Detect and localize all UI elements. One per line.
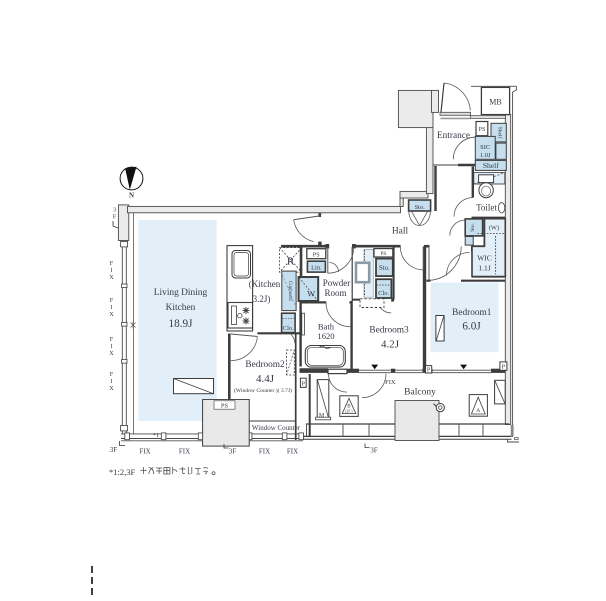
svg-text:Powder: Powder (323, 278, 351, 288)
svg-text:FIX: FIX (259, 448, 270, 456)
svg-text:1.1J: 1.1J (478, 264, 490, 273)
svg-text:X: X (109, 385, 114, 392)
svg-text:F: F (110, 260, 114, 267)
svg-text:X: X (109, 274, 114, 281)
svg-text:Room: Room (324, 288, 346, 298)
svg-text:Sto.: Sto. (414, 204, 425, 211)
svg-text:FIX: FIX (139, 448, 150, 456)
svg-text:(W): (W) (489, 225, 499, 232)
svg-text:Living Dining: Living Dining (154, 288, 208, 298)
svg-text:F: F (113, 214, 117, 221)
svg-text:Balcony: Balcony (404, 388, 436, 398)
svg-text:(2F ): (2F ) (345, 410, 353, 414)
svg-text:Shelf: Shelf (497, 127, 504, 139)
svg-text:18.9J: 18.9J (169, 318, 194, 330)
svg-text:PS: PS (313, 251, 320, 258)
svg-text:I: I (110, 378, 112, 385)
svg-text:3: 3 (113, 207, 116, 214)
svg-text:I: I (110, 304, 112, 311)
svg-text:Shelf: Shelf (483, 161, 499, 170)
svg-text:(Kitchen: (Kitchen (249, 279, 281, 289)
svg-text:MB: MB (489, 98, 501, 107)
svg-text:(Window Counter )( 3.7J): (Window Counter )( 3.7J) (234, 387, 292, 394)
svg-text:Lin.: Lin. (311, 264, 322, 271)
svg-text:FIX: FIX (179, 448, 190, 456)
svg-text:Bedroom3: Bedroom3 (369, 326, 409, 336)
svg-text:3F: 3F (229, 448, 237, 456)
svg-text:I: I (110, 343, 112, 350)
svg-text:WIC: WIC (477, 254, 492, 263)
svg-text:Bedroom2: Bedroom2 (245, 360, 285, 370)
svg-text:1620: 1620 (317, 331, 334, 341)
svg-text:Kitchen: Kitchen (166, 303, 196, 313)
svg-text:FIX: FIX (385, 379, 396, 386)
svg-text:*1:2,3F: *1:2,3F (109, 467, 135, 477)
svg-text:A: A (476, 408, 480, 414)
svg-text:I: I (110, 267, 112, 274)
svg-text:M: M (319, 413, 325, 419)
svg-text:Cupboard: Cupboard (287, 281, 292, 301)
svg-text:W: W (307, 289, 315, 299)
svg-text:X: X (109, 311, 114, 318)
svg-text:1.0J: 1.0J (480, 152, 491, 159)
svg-text:PS: PS (479, 127, 486, 133)
svg-text:Bedroom1: Bedroom1 (452, 308, 492, 318)
svg-text:SIC: SIC (480, 144, 490, 151)
svg-text:R: R (287, 256, 295, 268)
svg-text:N: N (129, 192, 134, 200)
svg-text:3F: 3F (370, 447, 378, 455)
svg-text:PS: PS (221, 403, 229, 410)
svg-text:Sto.: Sto. (379, 265, 390, 272)
svg-text:Clo.: Clo. (378, 290, 389, 297)
svg-text:F: F (110, 297, 114, 304)
svg-text:FIX: FIX (287, 448, 298, 456)
svg-text:*1: *1 (153, 432, 160, 439)
svg-text:Clo.: Clo. (283, 325, 294, 332)
svg-text:F: F (110, 336, 114, 343)
svg-text:Entrance: Entrance (437, 131, 470, 141)
svg-text:Toilet: Toilet (476, 203, 497, 213)
svg-text:3F: 3F (110, 446, 118, 454)
svg-text:PS: PS (380, 251, 386, 257)
svg-text:Hall: Hall (392, 227, 409, 237)
svg-text:3.2J): 3.2J) (253, 294, 271, 304)
svg-text:F: F (110, 371, 114, 378)
svg-text:X: X (109, 350, 114, 357)
svg-text:6.0J: 6.0J (462, 321, 481, 333)
svg-text:Sto.: Sto. (470, 222, 476, 231)
svg-text:4.4J: 4.4J (256, 373, 275, 385)
svg-text:Window Counter: Window Counter (252, 424, 301, 432)
svg-text:4.2J: 4.2J (381, 339, 400, 351)
